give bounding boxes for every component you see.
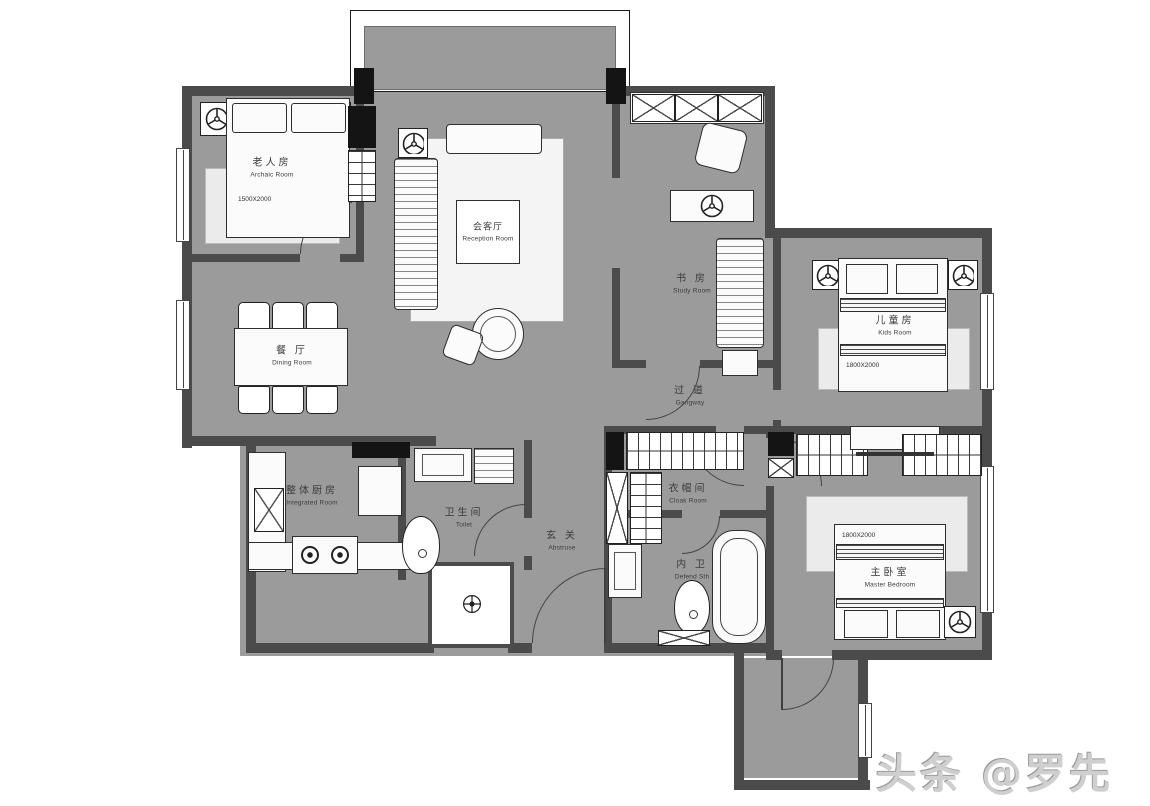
toilet-sink-basin: [422, 454, 464, 476]
wall-br-balcony-left: [734, 653, 744, 790]
tv-cabinet-living: [446, 124, 542, 154]
dining-chair: [306, 302, 338, 330]
pillow: [846, 264, 888, 294]
window-left-elderly: [176, 148, 190, 242]
wall-br-balcony-right-a: [858, 653, 868, 707]
window-left-dining: [176, 300, 190, 390]
dining-chair: [238, 302, 270, 330]
sofa-study: [716, 238, 764, 348]
room-label-gangway: 过 道Gangway: [674, 384, 706, 409]
storage-xbox-icon: [718, 94, 762, 122]
wall-study-right: [765, 92, 775, 238]
top-balcony-floor: [364, 26, 616, 90]
bed-dim-master: 1800X2000: [842, 532, 875, 539]
wardrobe-elderly: [348, 150, 376, 202]
room-label-cloak: 衣帽间Cloak Room: [669, 482, 708, 507]
black-wall-balcony-left: [354, 68, 374, 104]
room-label-reception: 会客厅Reception Room: [462, 220, 513, 243]
bed-slats: [840, 344, 946, 356]
floor-drain-icon: [462, 594, 482, 614]
room-label-archaic: 老人房Archaic Room: [250, 156, 293, 181]
window-right-master: [980, 466, 994, 613]
cloak-xbox-unit: [606, 472, 628, 544]
bed-slats: [840, 298, 946, 312]
storage-xbox-icon: [675, 94, 718, 122]
wall-toilet-right-b: [524, 556, 532, 570]
room-label-kitchen: 整体厨房Integrated Room: [286, 484, 338, 509]
wardrobe-elderly-top: [348, 106, 376, 148]
round-table-inner: [480, 316, 516, 352]
sofa-living: [394, 158, 438, 310]
room-label-entry: 玄 关Abstruse: [546, 529, 578, 554]
room-label-innerbath: 内 卫Defend Sth: [675, 558, 710, 583]
room-label-toilet: 卫生间Toilet: [445, 506, 484, 531]
master-black-unit: [768, 432, 794, 456]
room-label-kids: 儿童房Kids Room: [876, 314, 915, 339]
entry-door-leaf: [604, 568, 606, 643]
bed-slats: [836, 544, 944, 560]
wall-elderly-dining-a: [188, 254, 300, 262]
ceiling-lamp-icon: [398, 128, 428, 158]
wall-elderly-dining-b: [340, 254, 364, 262]
pillow: [232, 103, 287, 133]
washing-machine: [474, 448, 514, 484]
wall-dining-bottom: [182, 436, 256, 446]
master-tv-screen: [856, 452, 934, 456]
pillow: [291, 103, 346, 133]
innerbath-mat: [658, 630, 710, 646]
wall-left: [182, 86, 192, 448]
room-label-study: 书 房Study Room: [673, 272, 711, 297]
master-xbox-unit: [768, 458, 794, 478]
black-range-hood: [352, 442, 410, 458]
pillow: [896, 264, 938, 294]
innerbath-toilet-fixture: [674, 580, 710, 634]
ceiling-lamp-icon: [948, 260, 978, 290]
bathtub-inner: [720, 538, 758, 636]
wall-living-study-b: [612, 268, 620, 368]
pillow: [844, 610, 888, 638]
innerbath-sink-basin: [614, 552, 636, 590]
kitchen-fridge-icon: [254, 488, 284, 532]
wall-master-bottom-b: [832, 650, 992, 660]
storage-xbox-icon: [632, 94, 675, 122]
room-label-master: 主卧室Master Bedroom: [865, 566, 916, 591]
floor-plan: 1500X2000 老人房Archaic Room 会客厅Reception R…: [0, 0, 1150, 806]
wall-br-balcony-bottom: [734, 780, 870, 790]
pillow: [896, 610, 940, 638]
dining-chair: [238, 386, 270, 414]
bed-dim-kids: 1800X2000: [846, 362, 879, 369]
dining-chair: [306, 386, 338, 414]
wall-top-left: [182, 86, 364, 96]
wall-living-study-a: [612, 92, 620, 178]
watermark-text: 头条 @罗先森开森: [876, 740, 1150, 806]
br-balcony-door-leaf: [781, 658, 783, 710]
bed-dim-elderly: 1500X2000: [238, 196, 271, 203]
toilet-fixture: [402, 516, 440, 574]
cloak-black-unit: [606, 432, 624, 470]
wall-kids-left-b: [773, 420, 781, 432]
window-right-kids: [980, 293, 994, 390]
room-label-dining: 餐 厅Dining Room: [272, 344, 312, 369]
wall-kids-left-a: [773, 236, 781, 390]
kitchen-tall-unit: [358, 466, 402, 516]
cloak-wardrobe-top: [626, 432, 744, 470]
dining-chair: [272, 386, 304, 414]
dining-chair: [272, 302, 304, 330]
window-br-balcony: [858, 703, 872, 758]
wall-study-bottom-a: [612, 360, 646, 368]
wall-kitchen-ext-bottom: [248, 643, 434, 653]
cloak-wardrobe-left: [630, 472, 662, 544]
wall-br-balcony-right-b: [858, 756, 868, 790]
wall-master-left-b: [766, 486, 774, 660]
wall-kids-top: [773, 228, 990, 238]
ceiling-lamp-icon: [700, 194, 724, 218]
ceiling-lamp-icon: [944, 606, 976, 638]
black-wall-balcony-right: [606, 68, 626, 104]
side-table-study: [722, 350, 758, 376]
bed-slats: [836, 598, 944, 608]
kitchen-stove: [292, 536, 358, 574]
